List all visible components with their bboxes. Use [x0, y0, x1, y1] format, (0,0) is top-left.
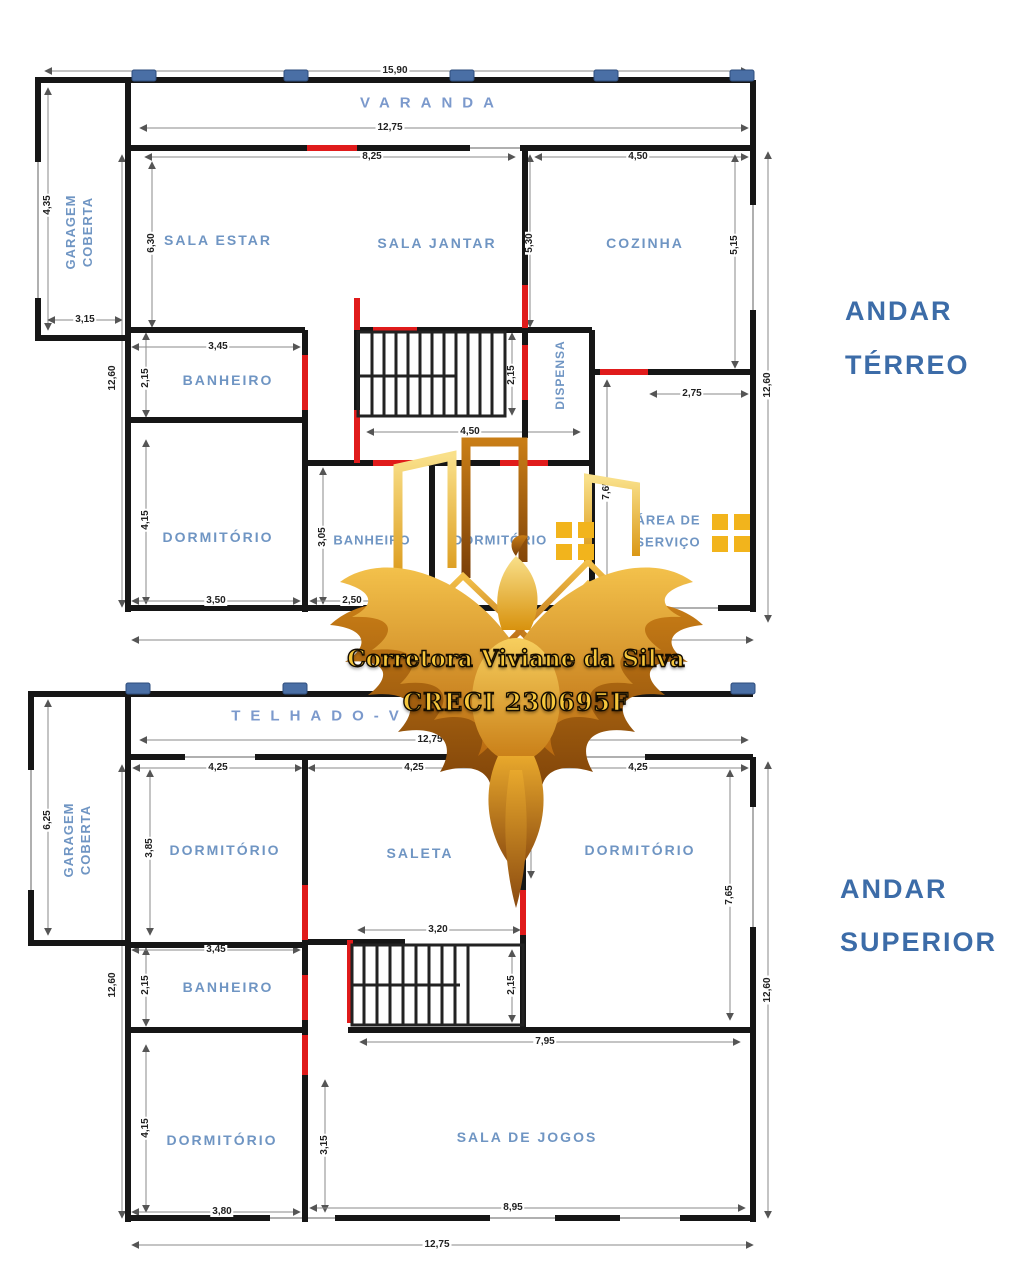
dim-upper-top: 12,75	[415, 735, 444, 745]
dim-dormitorio1-height: 4,15	[141, 508, 151, 531]
room-label-sala-estar: SALA ESTAR	[164, 232, 272, 248]
room-label-banheiro2: BANHEIRO	[333, 533, 410, 548]
room-label-area-servico-1: ÁREA DE	[635, 513, 700, 528]
stairs-ground	[358, 332, 505, 416]
room-label-cozinha: COZINHA	[606, 235, 684, 251]
dim-stairs-height: 2,15	[507, 363, 517, 386]
room-label-sala-jantar: SALA JANTAR	[377, 235, 496, 251]
dim-upper-dorm2-width: 4,25	[626, 763, 649, 773]
dim-upper-dorm1-width: 4,25	[206, 763, 229, 773]
room-label-garagem-upper: GARAGEM COBERTA	[61, 803, 95, 878]
dim-upper-banheiro-width: 3,45	[204, 945, 227, 955]
watermark-company-name: Corretora Viviane da Silva	[347, 646, 684, 673]
dim-hall-width: 4,50	[458, 427, 481, 437]
dim-upper-stairs-height: 2,15	[507, 973, 517, 996]
room-label-dormitorio2: DORMITÓRIO	[453, 533, 548, 548]
door-openings	[305, 148, 648, 1075]
garagem-upper-line2: COBERTA	[78, 805, 93, 875]
garagem-line1: GARAGEM	[63, 195, 78, 270]
dim-estar-height: 6,30	[147, 231, 157, 254]
dim-servico-height: 7,65	[602, 478, 612, 501]
dim-varanda: 12,75	[375, 123, 404, 133]
ground-title-line1: ANDAR	[845, 296, 953, 327]
room-label-telhado: TELHADO-V	[231, 708, 409, 725]
dim-total-top: 15,90	[380, 66, 409, 76]
dim-jogos-width: 8,95	[501, 1203, 524, 1213]
dim-upper-hall-width: 7,95	[533, 1037, 556, 1047]
dim-upper-left-total: 12,60	[108, 970, 118, 999]
dim-upper-dorm3-height: 4,15	[141, 1116, 151, 1139]
dim-upper-garagem-height: 6,25	[43, 808, 53, 831]
floor-plan-graphics	[0, 0, 1024, 1279]
dim-left-total: 12,60	[108, 363, 118, 392]
dim-upper-dorm1-height: 3,85	[145, 836, 155, 859]
room-label-upper-dormitorio1: DORMITÓRIO	[170, 842, 281, 858]
garagem-line2: COBERTA	[80, 197, 95, 267]
room-label-upper-dormitorio2: DORMITÓRIO	[585, 842, 696, 858]
upper-title-line2: SUPERIOR	[840, 927, 997, 958]
dim-jogos-door: 3,15	[320, 1133, 330, 1156]
dim-saleta-door: 5,30	[526, 826, 536, 849]
room-label-banheiro1: BANHEIRO	[183, 372, 274, 388]
dim-upper-bottom-total: 12,75	[422, 1240, 451, 1250]
watermark-creci-number: CRECI 230695F	[403, 688, 629, 717]
ground-title-line2: TÉRREO	[845, 350, 970, 381]
dim-garagem-height: 4,35	[43, 193, 53, 216]
room-label-upper-banheiro: BANHEIRO	[183, 979, 274, 995]
dim-right-total: 12,60	[763, 370, 773, 399]
dim-salas-top: 8,25	[360, 152, 383, 162]
room-label-sala-jogos: SALA DE JOGOS	[457, 1129, 598, 1145]
room-label-varanda: VARANDA	[360, 95, 504, 112]
room-label-garagem-ground: GARAGEM COBERTA	[63, 195, 97, 270]
dim-upper-dorm2-height: 7,65	[725, 883, 735, 906]
dim-dormitorio1-width: 3,50	[204, 596, 227, 606]
dim-jantar-height: 5,30	[525, 231, 535, 254]
dim-upper-banheiro-height: 2,15	[141, 973, 151, 996]
floor-plan-page: 15,90 VARANDA 12,75 8,25 4,50 GARAGEM CO…	[0, 0, 1024, 1279]
room-label-dispensa: DISPENSA	[553, 340, 567, 409]
room-label-upper-dormitorio3: DORMITÓRIO	[167, 1132, 278, 1148]
dim-upper-stairs-width: 3,20	[426, 925, 449, 935]
dim-upper-right-total: 12,60	[763, 975, 773, 1004]
room-label-dormitorio1: DORMITÓRIO	[163, 529, 274, 545]
dim-garagem-width: 3,15	[73, 315, 96, 325]
dim-banheiro1-height: 2,15	[141, 366, 151, 389]
stairs-upper	[352, 945, 523, 1025]
dim-banheiro2-width: 2,50	[340, 596, 363, 606]
room-label-area-servico-2: SERVIÇO	[635, 535, 700, 550]
dim-cozinha-height: 5,15	[730, 233, 740, 256]
dim-banheiro1-width: 3,45	[206, 342, 229, 352]
dim-saleta-width: 4,25	[402, 763, 425, 773]
room-label-saleta: SALETA	[387, 845, 454, 861]
dim-upper-dorm3-width: 3,80	[210, 1207, 233, 1217]
upper-dimension-lines	[48, 700, 768, 1245]
dim-banheiro2-height: 3,05	[318, 525, 328, 548]
garagem-upper-line1: GARAGEM	[61, 803, 76, 878]
dim-cozinha-top: 4,50	[626, 152, 649, 162]
upper-title-line1: ANDAR	[840, 874, 948, 905]
dim-servico-width: 2,75	[680, 389, 703, 399]
